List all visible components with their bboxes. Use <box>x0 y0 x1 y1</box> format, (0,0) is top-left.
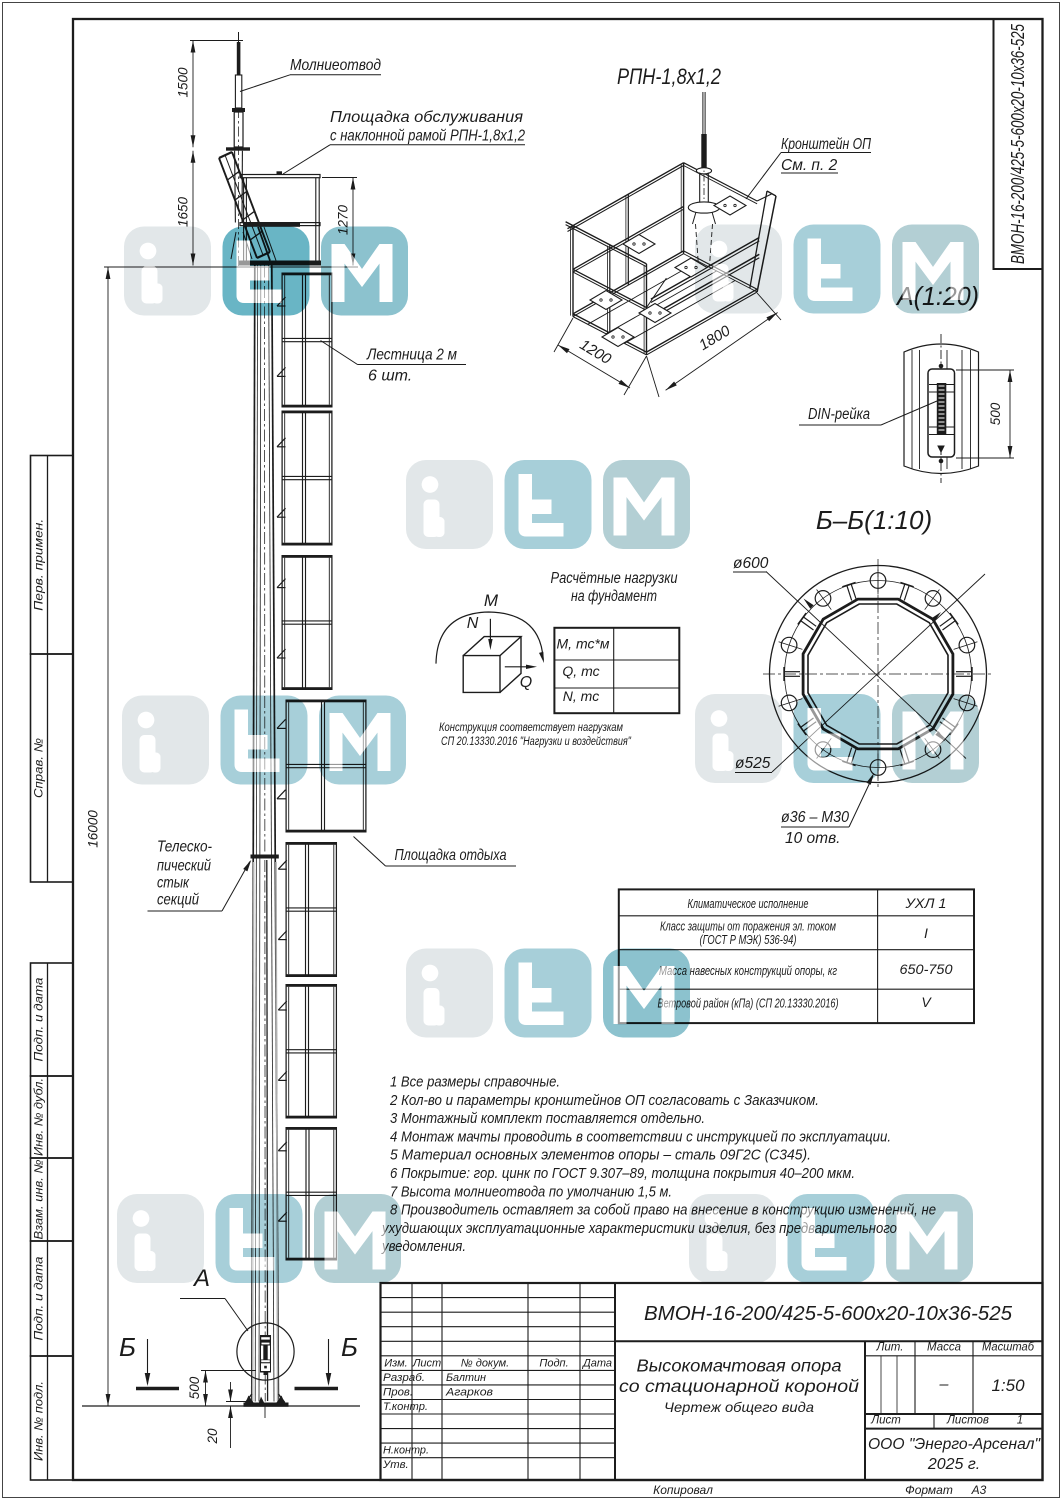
svg-text:DIN-рейка: DIN-рейка <box>808 406 870 423</box>
svg-text:УХЛ 1: УХЛ 1 <box>904 895 946 911</box>
svg-text:20: 20 <box>205 1428 220 1445</box>
svg-text:Подп. и дата: Подп. и дата <box>32 1256 46 1340</box>
svg-text:ВМОН-16-200/425-5-600x20-10x36: ВМОН-16-200/425-5-600x20-10x36-525 <box>644 1303 1013 1325</box>
svg-text:РПН-1,8х1,2: РПН-1,8х1,2 <box>617 64 721 89</box>
svg-text:Изм.: Изм. <box>384 1358 407 1370</box>
svg-text:N, тс: N, тс <box>563 688 599 704</box>
svg-text:пический: пический <box>157 858 211 875</box>
svg-text:Класс защиты от поражения эл.: Класс защиты от поражения эл. током <box>660 920 836 934</box>
svg-text:N: N <box>467 615 479 632</box>
svg-text:Разраб.: Разраб. <box>383 1372 425 1384</box>
svg-text:500: 500 <box>988 402 1003 425</box>
svg-text:Высокомачтовая опора: Высокомачтовая опора <box>637 1356 842 1376</box>
svg-text:Б: Б <box>341 1332 358 1362</box>
svg-text:Листов: Листов <box>946 1415 989 1427</box>
svg-text:2025 г.: 2025 г. <box>927 1456 980 1473</box>
svg-text:16000: 16000 <box>86 810 101 848</box>
svg-text:№ докум.: № докум. <box>461 1358 509 1370</box>
svg-text:М, тс*м: М, тс*м <box>557 636 610 652</box>
svg-text:7 Высота молниеотвода по умол: 7 Высота молниеотвода по умолчанию 1,5 м… <box>390 1183 672 1200</box>
svg-text:Б: Б <box>119 1332 136 1362</box>
svg-text:Площадка отдыха: Площадка отдыха <box>395 847 507 864</box>
svg-text:650-750: 650-750 <box>900 961 953 977</box>
svg-text:1650: 1650 <box>176 196 191 227</box>
svg-text:Подп.: Подп. <box>539 1358 568 1370</box>
svg-text:Лестница 2 м: Лестница 2 м <box>366 347 457 364</box>
svg-text:Q, тс: Q, тс <box>562 663 599 679</box>
svg-text:на фундамент: на фундамент <box>571 588 657 605</box>
svg-text:5 Материал основных элементов: 5 Материал основных элементов опоры – ст… <box>390 1147 811 1164</box>
svg-text:1:50: 1:50 <box>991 1376 1025 1395</box>
svg-text:Масса: Масса <box>927 1342 961 1354</box>
svg-text:6 шт.: 6 шт. <box>368 368 412 385</box>
svg-text:4 Монтаж мачты проводить в со: 4 Монтаж мачты проводить в соответствии … <box>390 1128 891 1145</box>
svg-text:Агарков: Агарков <box>445 1387 493 1399</box>
svg-text:I: I <box>924 925 928 941</box>
svg-text:500: 500 <box>187 1376 202 1399</box>
svg-text:–: – <box>939 1376 949 1393</box>
svg-text:Масштаб: Масштаб <box>982 1342 1035 1354</box>
svg-text:ООО "Энерго-Арсенал": ООО "Энерго-Арсенал" <box>868 1436 1041 1453</box>
svg-text:Инв. № дубл.: Инв. № дубл. <box>32 1078 46 1156</box>
svg-text:10 отв.: 10 отв. <box>785 830 840 847</box>
svg-text:Площадка обслуживания: Площадка обслуживания <box>330 109 523 126</box>
svg-text:Q: Q <box>520 674 532 691</box>
svg-text:Конструкция соответствует нагр: Конструкция соответствует нагрузкам <box>439 722 623 734</box>
svg-text:Б–Б(1:10): Б–Б(1:10) <box>816 505 932 535</box>
svg-text:Подп. и дата: Подп. и дата <box>32 977 46 1061</box>
svg-text:См. п. 2: См. п. 2 <box>781 157 838 174</box>
svg-text:1800: 1800 <box>696 322 734 354</box>
svg-text:Перв. примен.: Перв. примен. <box>32 519 46 611</box>
svg-text:Копировал: Копировал <box>653 1483 713 1497</box>
svg-text:Балтин: Балтин <box>446 1372 486 1384</box>
svg-text:Расчётные нагрузки: Расчётные нагрузки <box>551 570 678 587</box>
svg-text:А3: А3 <box>971 1483 987 1497</box>
svg-text:Лист: Лист <box>870 1415 901 1427</box>
svg-text:Дата: Дата <box>581 1358 612 1370</box>
svg-text:ø600: ø600 <box>733 555 769 572</box>
svg-text:Чертеж общего вида: Чертеж общего вида <box>664 1399 814 1415</box>
svg-text:Утв.: Утв. <box>382 1459 409 1471</box>
svg-text:Молниеотвод: Молниеотвод <box>290 57 381 74</box>
svg-text:секций: секций <box>157 892 199 909</box>
svg-text:с наклонной рамой РПН-1,8х1,2: с наклонной рамой РПН-1,8х1,2 <box>330 128 525 145</box>
svg-text:Лист: Лист <box>412 1358 441 1370</box>
svg-text:2 Кол-во и параметры кронштей: 2 Кол-во и параметры кронштейнов ОП согл… <box>389 1092 819 1109</box>
svg-text:Взам. инв. №: Взам. инв. № <box>32 1160 46 1240</box>
svg-text:стык: стык <box>157 875 190 892</box>
svg-text:V: V <box>921 994 932 1010</box>
svg-text:Пров.: Пров. <box>383 1387 413 1399</box>
svg-text:СП 20.13330.2016 "Нагрузки и в: СП 20.13330.2016 "Нагрузки и воздействия… <box>441 736 632 748</box>
svg-text:Телеско-: Телеско- <box>157 839 212 856</box>
svg-text:(ГОСТ Р МЭК) 536-94): (ГОСТ Р МЭК) 536-94) <box>700 933 797 947</box>
svg-text:Климатическое исполнение: Климатическое исполнение <box>688 897 809 911</box>
svg-text:Инв. № подл.: Инв. № подл. <box>32 1381 46 1461</box>
svg-text:М: М <box>484 591 499 610</box>
svg-text:6 Покрытие: гор. цинк по ГОСТ: 6 Покрытие: гор. цинк по ГОСТ 9.307–89, … <box>390 1165 855 1182</box>
svg-text:Т.контр.: Т.контр. <box>383 1401 428 1413</box>
svg-text:1: 1 <box>1017 1415 1023 1427</box>
svg-text:Кронштейн ОП: Кронштейн ОП <box>781 136 872 153</box>
svg-text:Лит.: Лит. <box>876 1342 904 1354</box>
svg-text:ø36 – М30: ø36 – М30 <box>781 809 849 826</box>
svg-text:ВМОН-16-200/425-5-600x20-10x36: ВМОН-16-200/425-5-600x20-10x36-525 <box>1008 23 1028 264</box>
svg-text:Справ. №: Справ. № <box>32 738 46 798</box>
svg-text:Формат: Формат <box>905 1483 953 1497</box>
svg-text:1 Все размеры справочные.: 1 Все размеры справочные. <box>390 1074 560 1091</box>
svg-text:Н.контр.: Н.контр. <box>383 1445 429 1457</box>
svg-text:1500: 1500 <box>176 67 191 98</box>
svg-text:со стационарной короной: со стационарной короной <box>619 1376 859 1396</box>
svg-text:3 Монтажный комплект поставля: 3 Монтажный комплект поставляется отдель… <box>390 1110 705 1127</box>
